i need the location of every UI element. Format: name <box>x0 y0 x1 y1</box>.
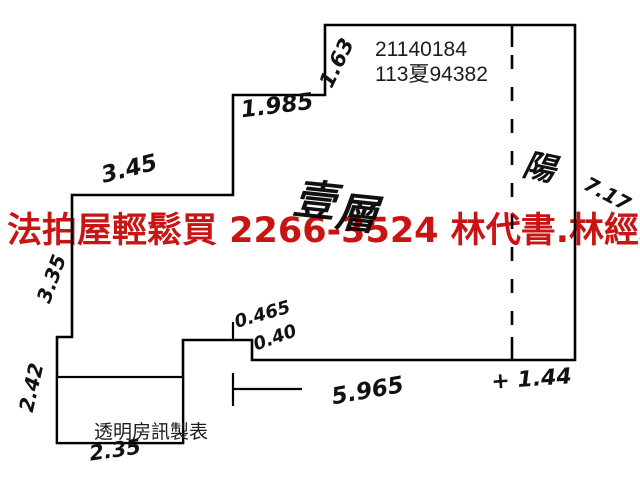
agent-ad-banner: 法拍屋輕鬆買 2266-3524 林代書.林經理 <box>7 209 640 253</box>
scanned-floorplan-page: 1.631.9853.453.352.422.350.4650.405.965+… <box>0 0 640 480</box>
case-number-line1: 21140184 <box>375 38 467 61</box>
dim-1-44: + 1.44 <box>491 364 573 395</box>
dim-1-63: 1.63 <box>315 34 359 91</box>
watermark-text: 透明房訊製表 <box>94 421 208 443</box>
room-balcony: 陽 <box>520 145 563 190</box>
dim-3-45: 3.45 <box>99 150 160 189</box>
dim-2-42: 2.42 <box>14 361 48 414</box>
case-number-line2: 113夏94382 <box>375 63 488 86</box>
dim-5-965: 5.965 <box>330 372 406 410</box>
dim-3-35: 3.35 <box>32 251 71 306</box>
